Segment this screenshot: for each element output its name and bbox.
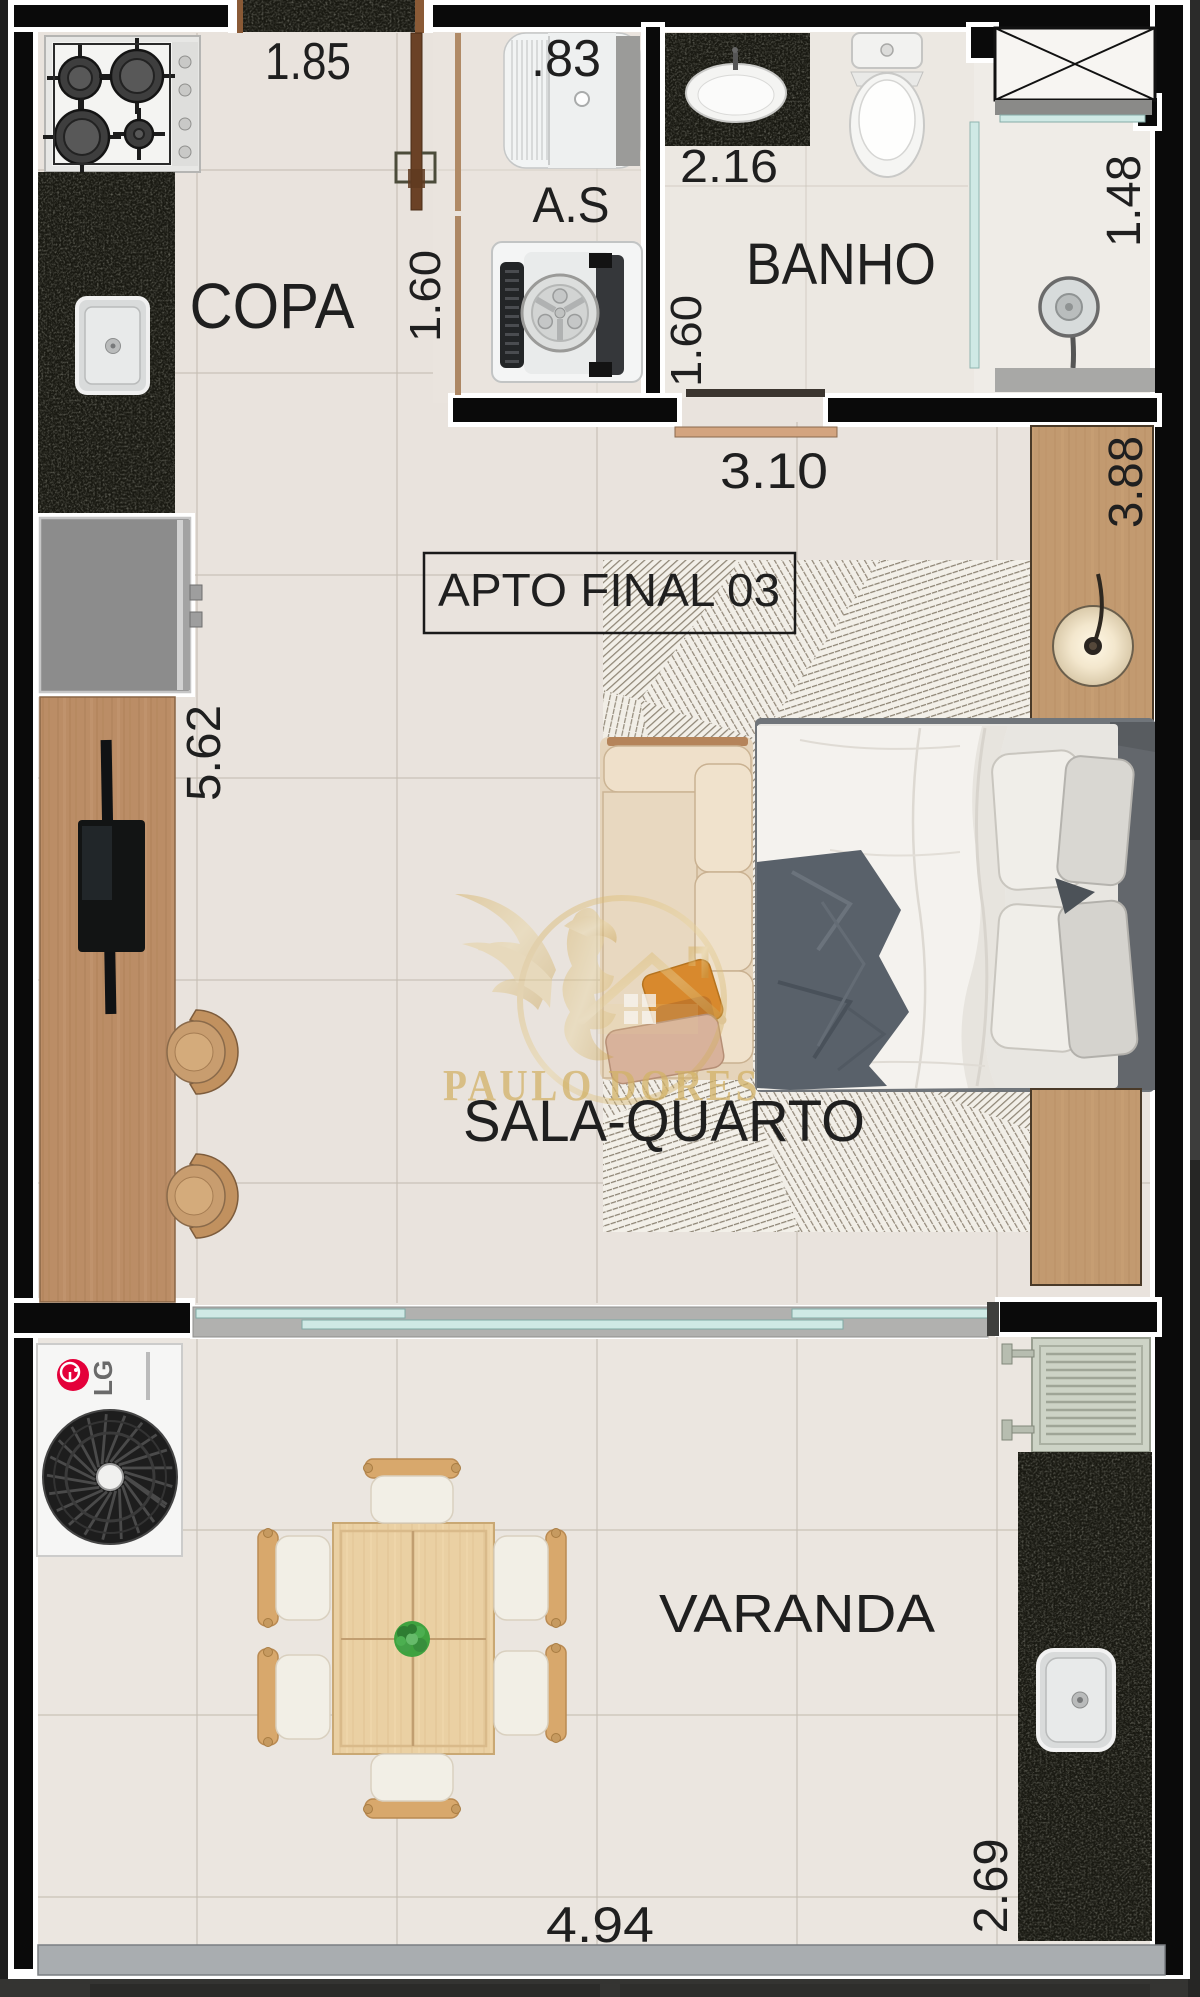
svg-text:SALA-QUARTO: SALA-QUARTO: [463, 1089, 865, 1154]
svg-text:VARANDA: VARANDA: [659, 1584, 935, 1644]
svg-text:COPA: COPA: [190, 270, 355, 342]
svg-text:1.48: 1.48: [1098, 155, 1151, 247]
svg-text:3.10: 3.10: [720, 443, 828, 499]
svg-text:2.69: 2.69: [965, 1839, 1018, 1934]
svg-text:BANHO: BANHO: [746, 232, 936, 297]
svg-text:1.85: 1.85: [265, 33, 351, 91]
svg-text:LG: LG: [88, 1360, 118, 1396]
svg-text:APTO FINAL 03: APTO FINAL 03: [438, 564, 780, 616]
svg-text:A.S: A.S: [533, 177, 610, 233]
svg-text:2.16: 2.16: [680, 140, 778, 192]
svg-text:1.60: 1.60: [401, 250, 450, 342]
svg-text:1.60: 1.60: [662, 295, 711, 387]
svg-text:3.88: 3.88: [1100, 436, 1153, 528]
svg-text:4.94: 4.94: [546, 1897, 654, 1953]
svg-text:.83: .83: [531, 30, 601, 88]
svg-text:5.62: 5.62: [178, 705, 231, 801]
